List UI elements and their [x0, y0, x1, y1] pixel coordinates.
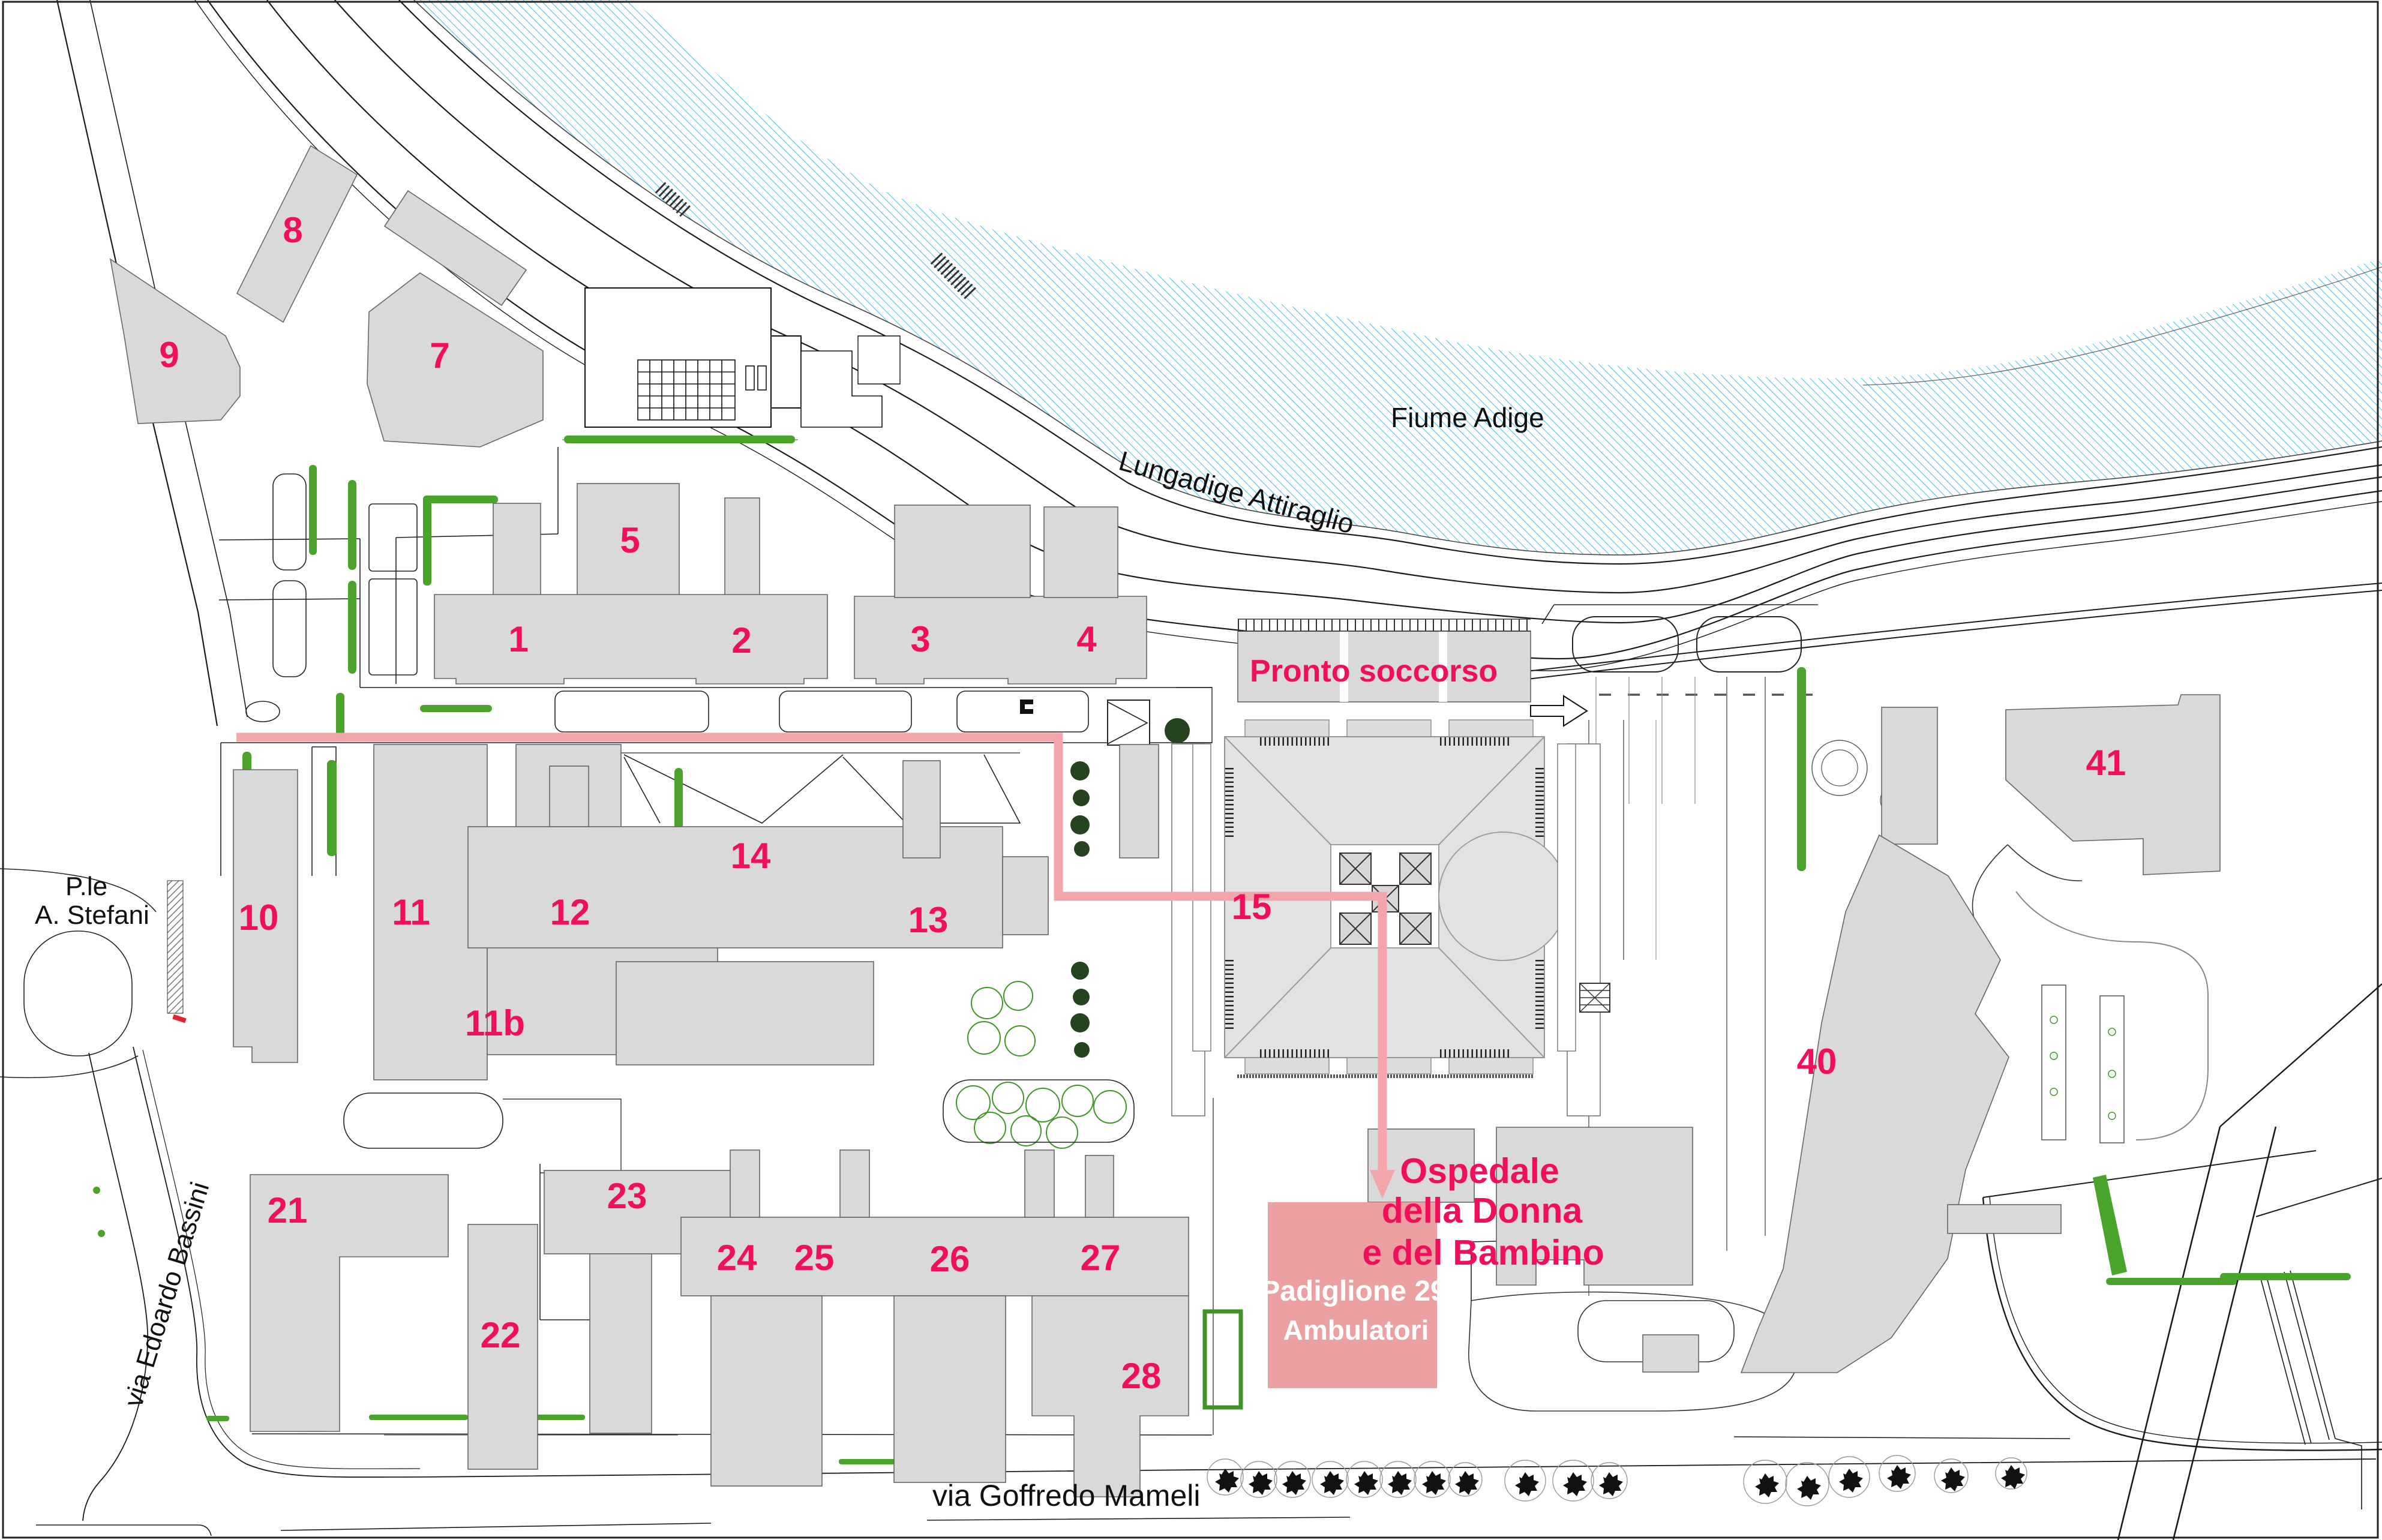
svg-text:14: 14 — [731, 836, 771, 876]
svg-text:A. Stefani: A. Stefani — [35, 900, 149, 930]
svg-text:23: 23 — [607, 1176, 647, 1216]
svg-text:25: 25 — [794, 1238, 835, 1278]
svg-text:12: 12 — [550, 892, 590, 932]
svg-text:27: 27 — [1081, 1238, 1121, 1278]
svg-text:11: 11 — [392, 892, 430, 932]
svg-text:2: 2 — [731, 620, 751, 661]
svg-text:26: 26 — [930, 1239, 970, 1279]
svg-text:21: 21 — [268, 1190, 308, 1230]
svg-text:22: 22 — [481, 1315, 521, 1355]
svg-text:13: 13 — [908, 900, 949, 940]
svg-text:Ospedale: Ospedale — [1400, 1151, 1559, 1191]
svg-text:1: 1 — [508, 619, 528, 659]
svg-text:P.le: P.le — [65, 872, 107, 901]
svg-text:via Goffredo Mameli: via Goffredo Mameli — [932, 1479, 1200, 1512]
svg-text:10: 10 — [239, 897, 279, 938]
svg-text:Padiglione 29: Padiglione 29 — [1261, 1275, 1446, 1307]
svg-text:24: 24 — [717, 1238, 757, 1278]
svg-text:3: 3 — [910, 619, 930, 659]
svg-text:della Donna: della Donna — [1382, 1191, 1583, 1230]
svg-text:Pronto soccorso: Pronto soccorso — [1250, 654, 1498, 689]
svg-text:9: 9 — [159, 335, 179, 375]
svg-text:e del Bambino: e del Bambino — [1362, 1233, 1604, 1272]
svg-text:Ambulatori: Ambulatori — [1283, 1314, 1429, 1346]
svg-text:Fiume Adige: Fiume Adige — [1391, 402, 1544, 433]
svg-text:7: 7 — [430, 335, 449, 376]
svg-text:28: 28 — [1121, 1356, 1162, 1396]
svg-text:41: 41 — [2086, 743, 2126, 783]
svg-text:4: 4 — [1076, 619, 1097, 659]
svg-text:11b: 11b — [465, 1003, 525, 1043]
svg-text:5: 5 — [620, 520, 640, 560]
svg-text:15: 15 — [1232, 887, 1272, 927]
svg-text:8: 8 — [283, 210, 302, 250]
svg-text:40: 40 — [1797, 1041, 1837, 1082]
